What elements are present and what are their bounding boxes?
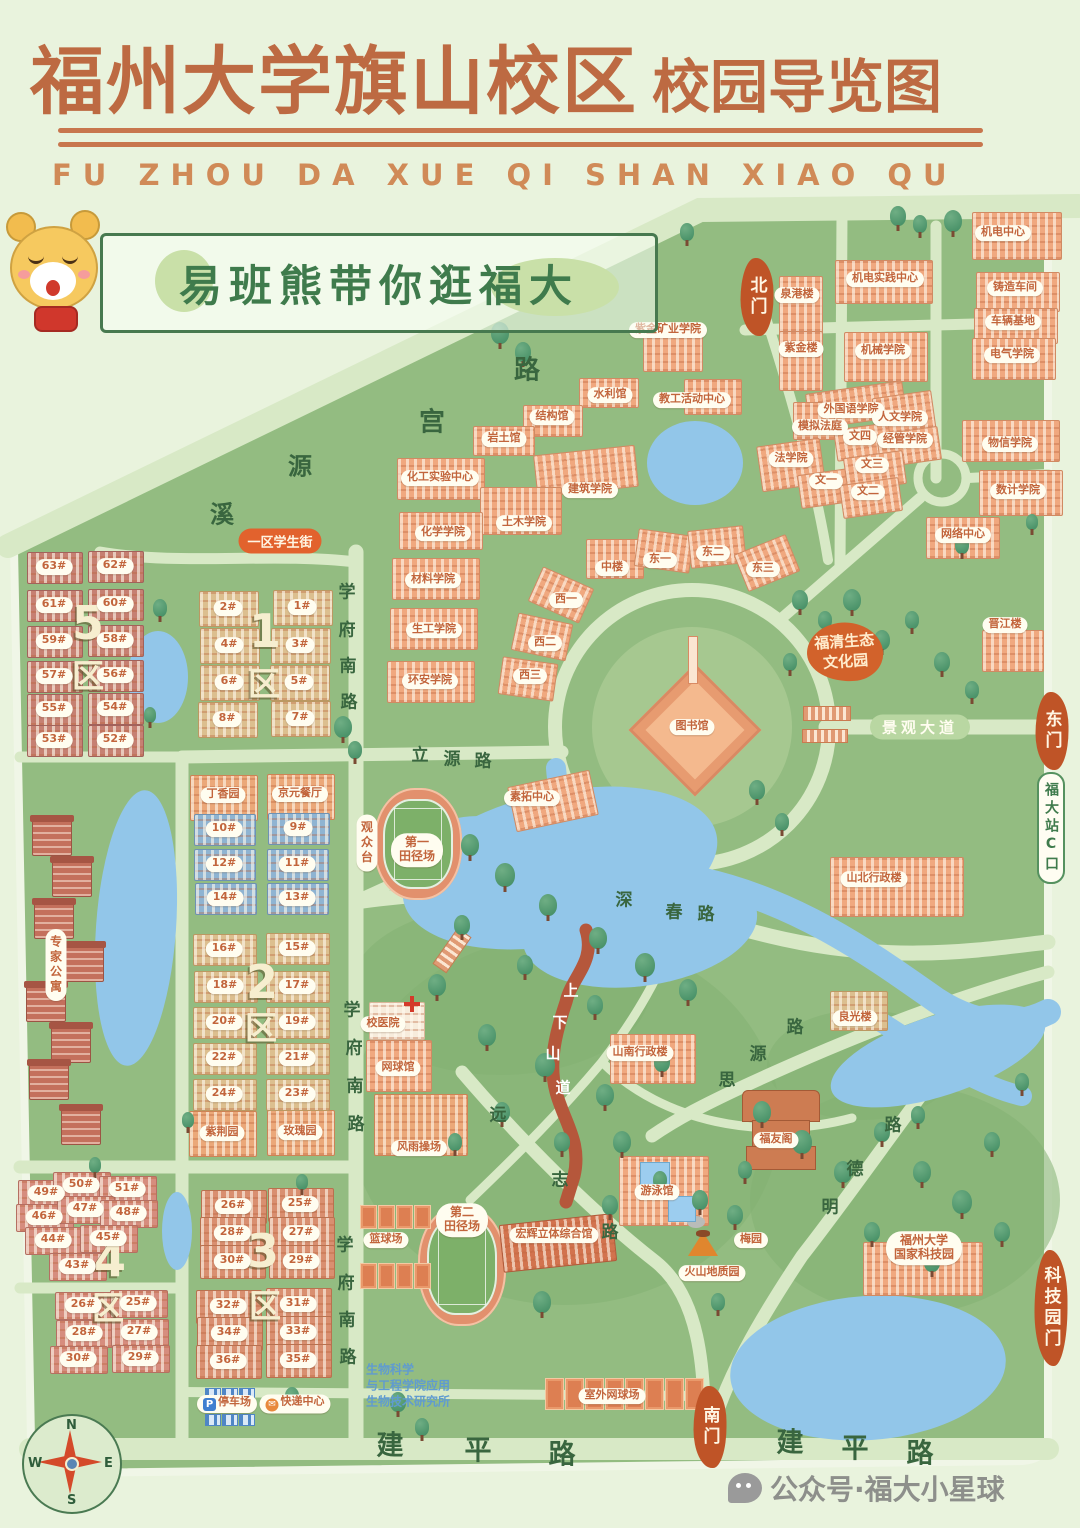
- tree-icon: [153, 599, 167, 617]
- building-label: 28#: [214, 1225, 251, 1241]
- institute-note: 生物科学: [366, 1361, 414, 1378]
- tree-icon: [727, 1205, 743, 1225]
- building-label: 11#: [279, 856, 316, 872]
- building-label: 人文学院: [872, 410, 928, 426]
- tree-icon: [635, 953, 655, 977]
- compass-e: E: [104, 1456, 113, 1471]
- building-label: 46#: [26, 1209, 63, 1225]
- building-label: 52#: [97, 732, 134, 748]
- bridge: [803, 706, 851, 721]
- parking-icon: P: [203, 1398, 216, 1411]
- tree-icon: [680, 223, 694, 241]
- building-label: 法学院: [769, 451, 814, 467]
- building-label: 3#: [286, 637, 315, 653]
- tree-icon: [843, 589, 861, 611]
- apartment-house: [29, 1064, 69, 1100]
- building: [643, 334, 703, 372]
- map-label: 观众台: [357, 815, 378, 872]
- compass-w: W: [28, 1456, 42, 1471]
- building-label: 4#: [215, 637, 244, 653]
- road-name-char: 源: [444, 745, 461, 770]
- building-label: 20#: [206, 1014, 243, 1030]
- building-label: 生工学院: [406, 622, 462, 638]
- tree-icon: [461, 834, 479, 856]
- building-label: 62#: [97, 558, 134, 574]
- banner-text: 易班熊带你逛福大: [179, 252, 579, 314]
- sport-court: [396, 1205, 413, 1229]
- building-label: P停车场: [197, 1395, 257, 1413]
- building-label: 9#: [284, 820, 313, 836]
- building-label: 31#: [280, 1296, 317, 1312]
- building-label: 经管学院: [877, 432, 933, 448]
- road-name-char: 源: [750, 1040, 767, 1065]
- building-label: 25#: [282, 1196, 319, 1212]
- building-label: 21#: [279, 1050, 316, 1066]
- compass: N E S W: [22, 1414, 122, 1514]
- apartment-house: [64, 946, 104, 982]
- building-label: 61#: [36, 597, 73, 613]
- building-label: 西三: [513, 668, 547, 684]
- gate-label: 北门: [741, 258, 774, 336]
- building-label: 福州大学 国家科技园: [886, 1231, 962, 1265]
- building-label: 铸造车间: [987, 280, 1043, 296]
- building-label: 34#: [211, 1325, 248, 1341]
- building-label: 京元餐厅: [272, 786, 328, 802]
- road-name-char: 学: [337, 1231, 354, 1256]
- tree-icon: [554, 1132, 570, 1152]
- tree-icon: [182, 1112, 195, 1127]
- road-name-char: 南: [340, 652, 357, 677]
- road-name-char: 学: [339, 578, 356, 603]
- zone-number: 2: [246, 955, 278, 1009]
- building-label: 2#: [214, 600, 243, 616]
- building-label: 27#: [121, 1324, 158, 1340]
- building-label: 30#: [60, 1351, 97, 1367]
- building-label: 60#: [97, 596, 134, 612]
- building-label: 29#: [122, 1350, 159, 1366]
- road-name-char: 溪: [210, 495, 234, 530]
- building-label: 福友阁: [754, 1132, 799, 1148]
- building-label: 36#: [210, 1353, 247, 1369]
- apartment-house: [61, 1109, 101, 1145]
- tree-icon: [334, 716, 352, 738]
- building-label: 数计学院: [990, 483, 1046, 499]
- building-label: 化学学院: [415, 525, 471, 541]
- building-label: 59#: [36, 633, 73, 649]
- building-label: 机电实践中心: [846, 271, 924, 287]
- title-underline: [58, 142, 983, 147]
- building-label: 43#: [59, 1258, 96, 1274]
- zone-number: 区: [249, 1281, 281, 1327]
- road-name-char: 远: [490, 1101, 507, 1126]
- tree-icon: [533, 1291, 551, 1313]
- watermark-text: 公众号·福大小星球: [770, 1468, 1005, 1508]
- building: [779, 331, 823, 391]
- building-label: 56#: [97, 667, 134, 683]
- trail-name-char: 山: [545, 1043, 560, 1064]
- building-label: 建筑学院: [562, 482, 618, 498]
- building-label: 35#: [280, 1352, 317, 1368]
- gate-label: 科技园门: [1035, 1250, 1068, 1366]
- gate-label: 东门: [1036, 692, 1069, 770]
- road-name-char: 路: [341, 688, 358, 713]
- building-label: 机械学院: [855, 343, 911, 359]
- building-label: 1#: [288, 599, 317, 615]
- building-label: 良光楼: [833, 1010, 878, 1026]
- building-label: 文四: [843, 429, 877, 445]
- road-name-char: 明: [822, 1193, 839, 1218]
- tree-icon: [596, 1084, 614, 1106]
- building-label: 32#: [210, 1298, 247, 1314]
- parking-stall: [205, 1414, 221, 1426]
- gate-label: 南门: [694, 1386, 727, 1468]
- building-label: ✉快递中心: [260, 1395, 331, 1414]
- zone-number: 1: [249, 604, 281, 658]
- tree-icon: [517, 955, 533, 975]
- building-label: 紫荆园: [200, 1125, 245, 1141]
- building-label: 6#: [215, 674, 244, 690]
- road-name-char: 宫: [419, 402, 445, 439]
- road-name-char: 深: [616, 886, 633, 911]
- tree-icon: [296, 1174, 309, 1189]
- building-label: 校医院: [361, 1016, 406, 1032]
- tree-icon: [1026, 514, 1039, 529]
- zone-number: 区: [248, 659, 280, 705]
- building-label: 土木学院: [496, 515, 552, 531]
- sport-court: [378, 1205, 395, 1229]
- tree-icon: [692, 1190, 708, 1210]
- road-name-char: 路: [549, 1433, 576, 1472]
- tree-icon: [144, 707, 157, 722]
- building-label: 环安学院: [402, 673, 458, 689]
- road-name-char: 立: [412, 741, 429, 766]
- trail-name-char: 下: [552, 1012, 567, 1033]
- tree-icon: [944, 210, 962, 232]
- road-name-char: 府: [346, 1034, 363, 1059]
- building-label: 53#: [36, 732, 73, 748]
- building-label: 西一: [549, 592, 583, 608]
- bear-blush: [18, 270, 30, 279]
- compass-n: N: [66, 1418, 77, 1433]
- bear-body: [34, 306, 78, 332]
- road-name-char: 思: [719, 1066, 736, 1091]
- building-label: 水利馆: [588, 387, 633, 403]
- building-label: 57#: [36, 668, 73, 684]
- building-label: 火山地质园: [679, 1265, 746, 1281]
- building: [982, 630, 1044, 672]
- title-main: 福州大学旗山校区: [30, 39, 638, 125]
- building-label: 模拟法庭: [792, 419, 848, 435]
- express-icon: ✉: [266, 1399, 279, 1412]
- building-label: 47#: [67, 1201, 104, 1217]
- building-label: 结构馆: [530, 409, 575, 425]
- tree-icon: [587, 995, 603, 1015]
- building-label: 泉港楼: [775, 287, 820, 303]
- apartment-house: [51, 1027, 91, 1063]
- building-label: 10#: [206, 821, 243, 837]
- building-label: 岩土馆: [482, 431, 527, 447]
- tree-icon: [539, 894, 557, 916]
- building-label: 25#: [120, 1295, 157, 1311]
- road-name-char: 平: [465, 1429, 492, 1468]
- institute-note: 与工程学院应用: [366, 1377, 450, 1394]
- road-name-char: 德: [847, 1155, 864, 1180]
- building-label: 东一: [643, 552, 677, 568]
- building-label: 54#: [97, 700, 134, 716]
- tree-icon: [775, 813, 789, 831]
- tree-icon: [738, 1161, 752, 1179]
- road-name-char: 路: [348, 1110, 365, 1135]
- tree-icon: [934, 652, 950, 672]
- bridge: [802, 729, 848, 743]
- building-label: 23#: [279, 1086, 316, 1102]
- hospital-cross-icon: [404, 996, 420, 1012]
- title-pinyin: FU ZHOU DA XUE QI SHAN XIAO QU: [52, 158, 958, 192]
- building-label: 丁香园: [201, 787, 246, 803]
- building-label: 29#: [283, 1253, 320, 1269]
- road-name-char: 路: [475, 747, 492, 772]
- road-name-char: 建: [777, 1421, 804, 1460]
- tree-icon: [454, 915, 470, 935]
- building-label: 教工活动中心: [653, 392, 731, 408]
- institute-note: 生物技术研究所: [366, 1393, 450, 1410]
- compass-center: [65, 1457, 79, 1471]
- building-label: 55#: [36, 701, 73, 717]
- road-name-char: 建: [377, 1424, 404, 1463]
- building-label: 紫金楼: [779, 341, 824, 357]
- tree-icon: [1015, 1073, 1029, 1091]
- compass-s: S: [67, 1493, 76, 1508]
- mascot-banner: 易班熊带你逛福大: [100, 233, 658, 333]
- tree-icon: [602, 1195, 618, 1215]
- tree-icon: [711, 1293, 725, 1311]
- tree-icon: [905, 611, 919, 629]
- tree-icon: [478, 1024, 496, 1046]
- building-label: 22#: [206, 1050, 243, 1066]
- building-label: 晋江楼: [983, 617, 1028, 633]
- building-label: 45#: [90, 1230, 127, 1246]
- title-sub: 校园导览图: [652, 53, 942, 121]
- campus-map: 福州大学旗山校区校园导览图 FU ZHOU DA XUE QI SHAN XIA…: [0, 0, 1080, 1528]
- building-label: 18#: [207, 978, 244, 994]
- building-label: 西二: [528, 635, 562, 651]
- building-label: 中楼: [595, 560, 629, 576]
- building-label: 48#: [110, 1205, 147, 1221]
- tree-icon: [749, 780, 765, 800]
- building-label: 网络中心: [935, 527, 991, 543]
- road-name-char: 路: [787, 1013, 804, 1038]
- building-label: 文三: [855, 457, 889, 473]
- building-label: 63#: [36, 559, 73, 575]
- building-label: 宏辉立体综合馆: [510, 1227, 599, 1243]
- building-label: 15#: [279, 940, 316, 956]
- building-label: 第二 田径场: [436, 1203, 488, 1237]
- tree-icon: [613, 1131, 631, 1153]
- building-label: 8#: [213, 711, 242, 727]
- building-label: 13#: [279, 890, 316, 906]
- building-label: 50#: [63, 1177, 100, 1193]
- sport-court: [360, 1263, 377, 1289]
- bear-mouth: [46, 280, 60, 296]
- tree-icon: [448, 1133, 462, 1151]
- building-label: 17#: [279, 978, 316, 994]
- building-label: 49#: [28, 1185, 65, 1201]
- zone-number: 区: [245, 1003, 277, 1049]
- tree-icon: [913, 1161, 931, 1183]
- building-label: 图书馆: [670, 719, 715, 735]
- map-label: 专家公寓: [46, 929, 67, 1001]
- road-name-char: 路: [340, 1343, 357, 1368]
- sport-court: [414, 1205, 431, 1229]
- building-label: 12#: [206, 856, 243, 872]
- tree-icon: [913, 215, 927, 233]
- parking-stall: [239, 1414, 255, 1426]
- road-name-char: 平: [842, 1427, 869, 1466]
- building-label: 33#: [280, 1324, 317, 1340]
- building-label: 物信学院: [982, 436, 1038, 452]
- building-label: 44#: [35, 1232, 72, 1248]
- building-label: 山南行政楼: [607, 1045, 674, 1061]
- tree-icon: [994, 1222, 1010, 1242]
- building-label: 车辆基地: [985, 314, 1041, 330]
- tree-icon: [911, 1106, 925, 1124]
- bear-mascot-icon: [4, 210, 110, 334]
- building-label: 玫瑰园: [278, 1124, 323, 1140]
- tree-icon: [753, 1101, 771, 1123]
- tree-icon: [589, 927, 607, 949]
- building-label: 机电中心: [975, 225, 1031, 241]
- road-name-char: 南: [339, 1306, 356, 1331]
- building-label: 素拓中心: [504, 790, 560, 806]
- building-label: 51#: [109, 1181, 146, 1197]
- building-label: 化工实验中心: [401, 470, 479, 486]
- sport-court: [360, 1205, 377, 1229]
- building-label: 27#: [283, 1225, 320, 1241]
- volcano-icon: [688, 1232, 718, 1256]
- road-name-char: 春: [666, 898, 683, 923]
- road-name-char: 路: [514, 350, 540, 387]
- sport-court: [645, 1378, 664, 1410]
- tree-icon: [428, 974, 446, 996]
- apartment-house: [32, 820, 72, 856]
- building-label: 游泳馆: [635, 1184, 680, 1200]
- road-name-char: 府: [338, 1269, 355, 1294]
- building-label: 5#: [285, 674, 314, 690]
- building-label: 28#: [66, 1325, 103, 1341]
- tree-icon: [679, 979, 697, 1001]
- tree-icon: [890, 206, 906, 226]
- sport-court: [665, 1378, 684, 1410]
- road-name-char: 路: [602, 1218, 619, 1243]
- building-label: 东二: [696, 545, 730, 561]
- tree-icon: [952, 1190, 972, 1214]
- building: [830, 857, 964, 917]
- trail-name-char: 上: [563, 980, 578, 1001]
- building-label: 网球馆: [376, 1060, 421, 1076]
- building-label: 文二: [851, 484, 885, 500]
- tree-icon: [348, 741, 362, 759]
- tree-icon: [783, 653, 797, 671]
- building-label: 东三: [746, 561, 780, 577]
- building-label: 24#: [206, 1086, 243, 1102]
- road-name-char: 路: [698, 900, 715, 925]
- building-label: 58#: [97, 632, 134, 648]
- road-name-char: 南: [347, 1072, 364, 1097]
- road-name-char: 路: [885, 1111, 902, 1136]
- road-name-char: 志: [552, 1166, 569, 1191]
- bear-blush: [78, 270, 90, 279]
- building-label: 电气学院: [984, 347, 1040, 363]
- tree-icon: [984, 1132, 1000, 1152]
- parking-stall: [222, 1414, 238, 1426]
- metro-station-label: 福大站C口: [1037, 772, 1065, 884]
- sport-court: [414, 1263, 431, 1289]
- building-label: 室外网球场: [579, 1388, 646, 1404]
- map-label: 景观大道: [870, 715, 970, 740]
- building-label: 26#: [215, 1198, 252, 1214]
- wechat-icon: [728, 1473, 762, 1503]
- building-label: 文一: [809, 473, 843, 489]
- building-label: 山北行政楼: [841, 871, 908, 887]
- tree-icon: [495, 863, 515, 887]
- watermark: 公众号·福大小星球: [728, 1468, 1005, 1508]
- road-name-char: 府: [339, 616, 356, 641]
- building-label: 30#: [214, 1253, 251, 1269]
- library-tower: [688, 636, 698, 684]
- road-name-char: 路: [907, 1432, 934, 1471]
- building-label: 7#: [286, 710, 315, 726]
- sport-court: [545, 1378, 564, 1410]
- building-label: 19#: [279, 1014, 316, 1030]
- map-label: 一区学生街: [238, 529, 321, 554]
- title-underline: [58, 128, 983, 133]
- building-label: 26#: [65, 1297, 102, 1313]
- tree-icon: [89, 1157, 102, 1172]
- sport-court: [378, 1263, 395, 1289]
- apartment-house: [52, 861, 92, 897]
- tree-icon: [965, 681, 979, 699]
- tree-icon: [792, 590, 808, 610]
- building-label: 16#: [206, 941, 243, 957]
- trail-name-char: 道: [555, 1077, 570, 1098]
- road-name-char: 学: [344, 996, 361, 1021]
- sport-court: [396, 1263, 413, 1289]
- zone-number: 3: [247, 1224, 279, 1278]
- building-label: 风雨操场: [391, 1140, 447, 1156]
- building-label: 材料学院: [405, 572, 461, 588]
- building-label: 篮球场: [364, 1232, 409, 1248]
- building-label: 14#: [207, 890, 244, 906]
- road-name-char: 源: [288, 447, 312, 482]
- page-title: 福州大学旗山校区校园导览图: [30, 22, 942, 129]
- building-label: 梅园: [734, 1232, 768, 1248]
- tree-icon: [415, 1418, 429, 1436]
- tree-icon: [864, 1222, 880, 1242]
- building-label: 第一 田径场: [391, 833, 443, 867]
